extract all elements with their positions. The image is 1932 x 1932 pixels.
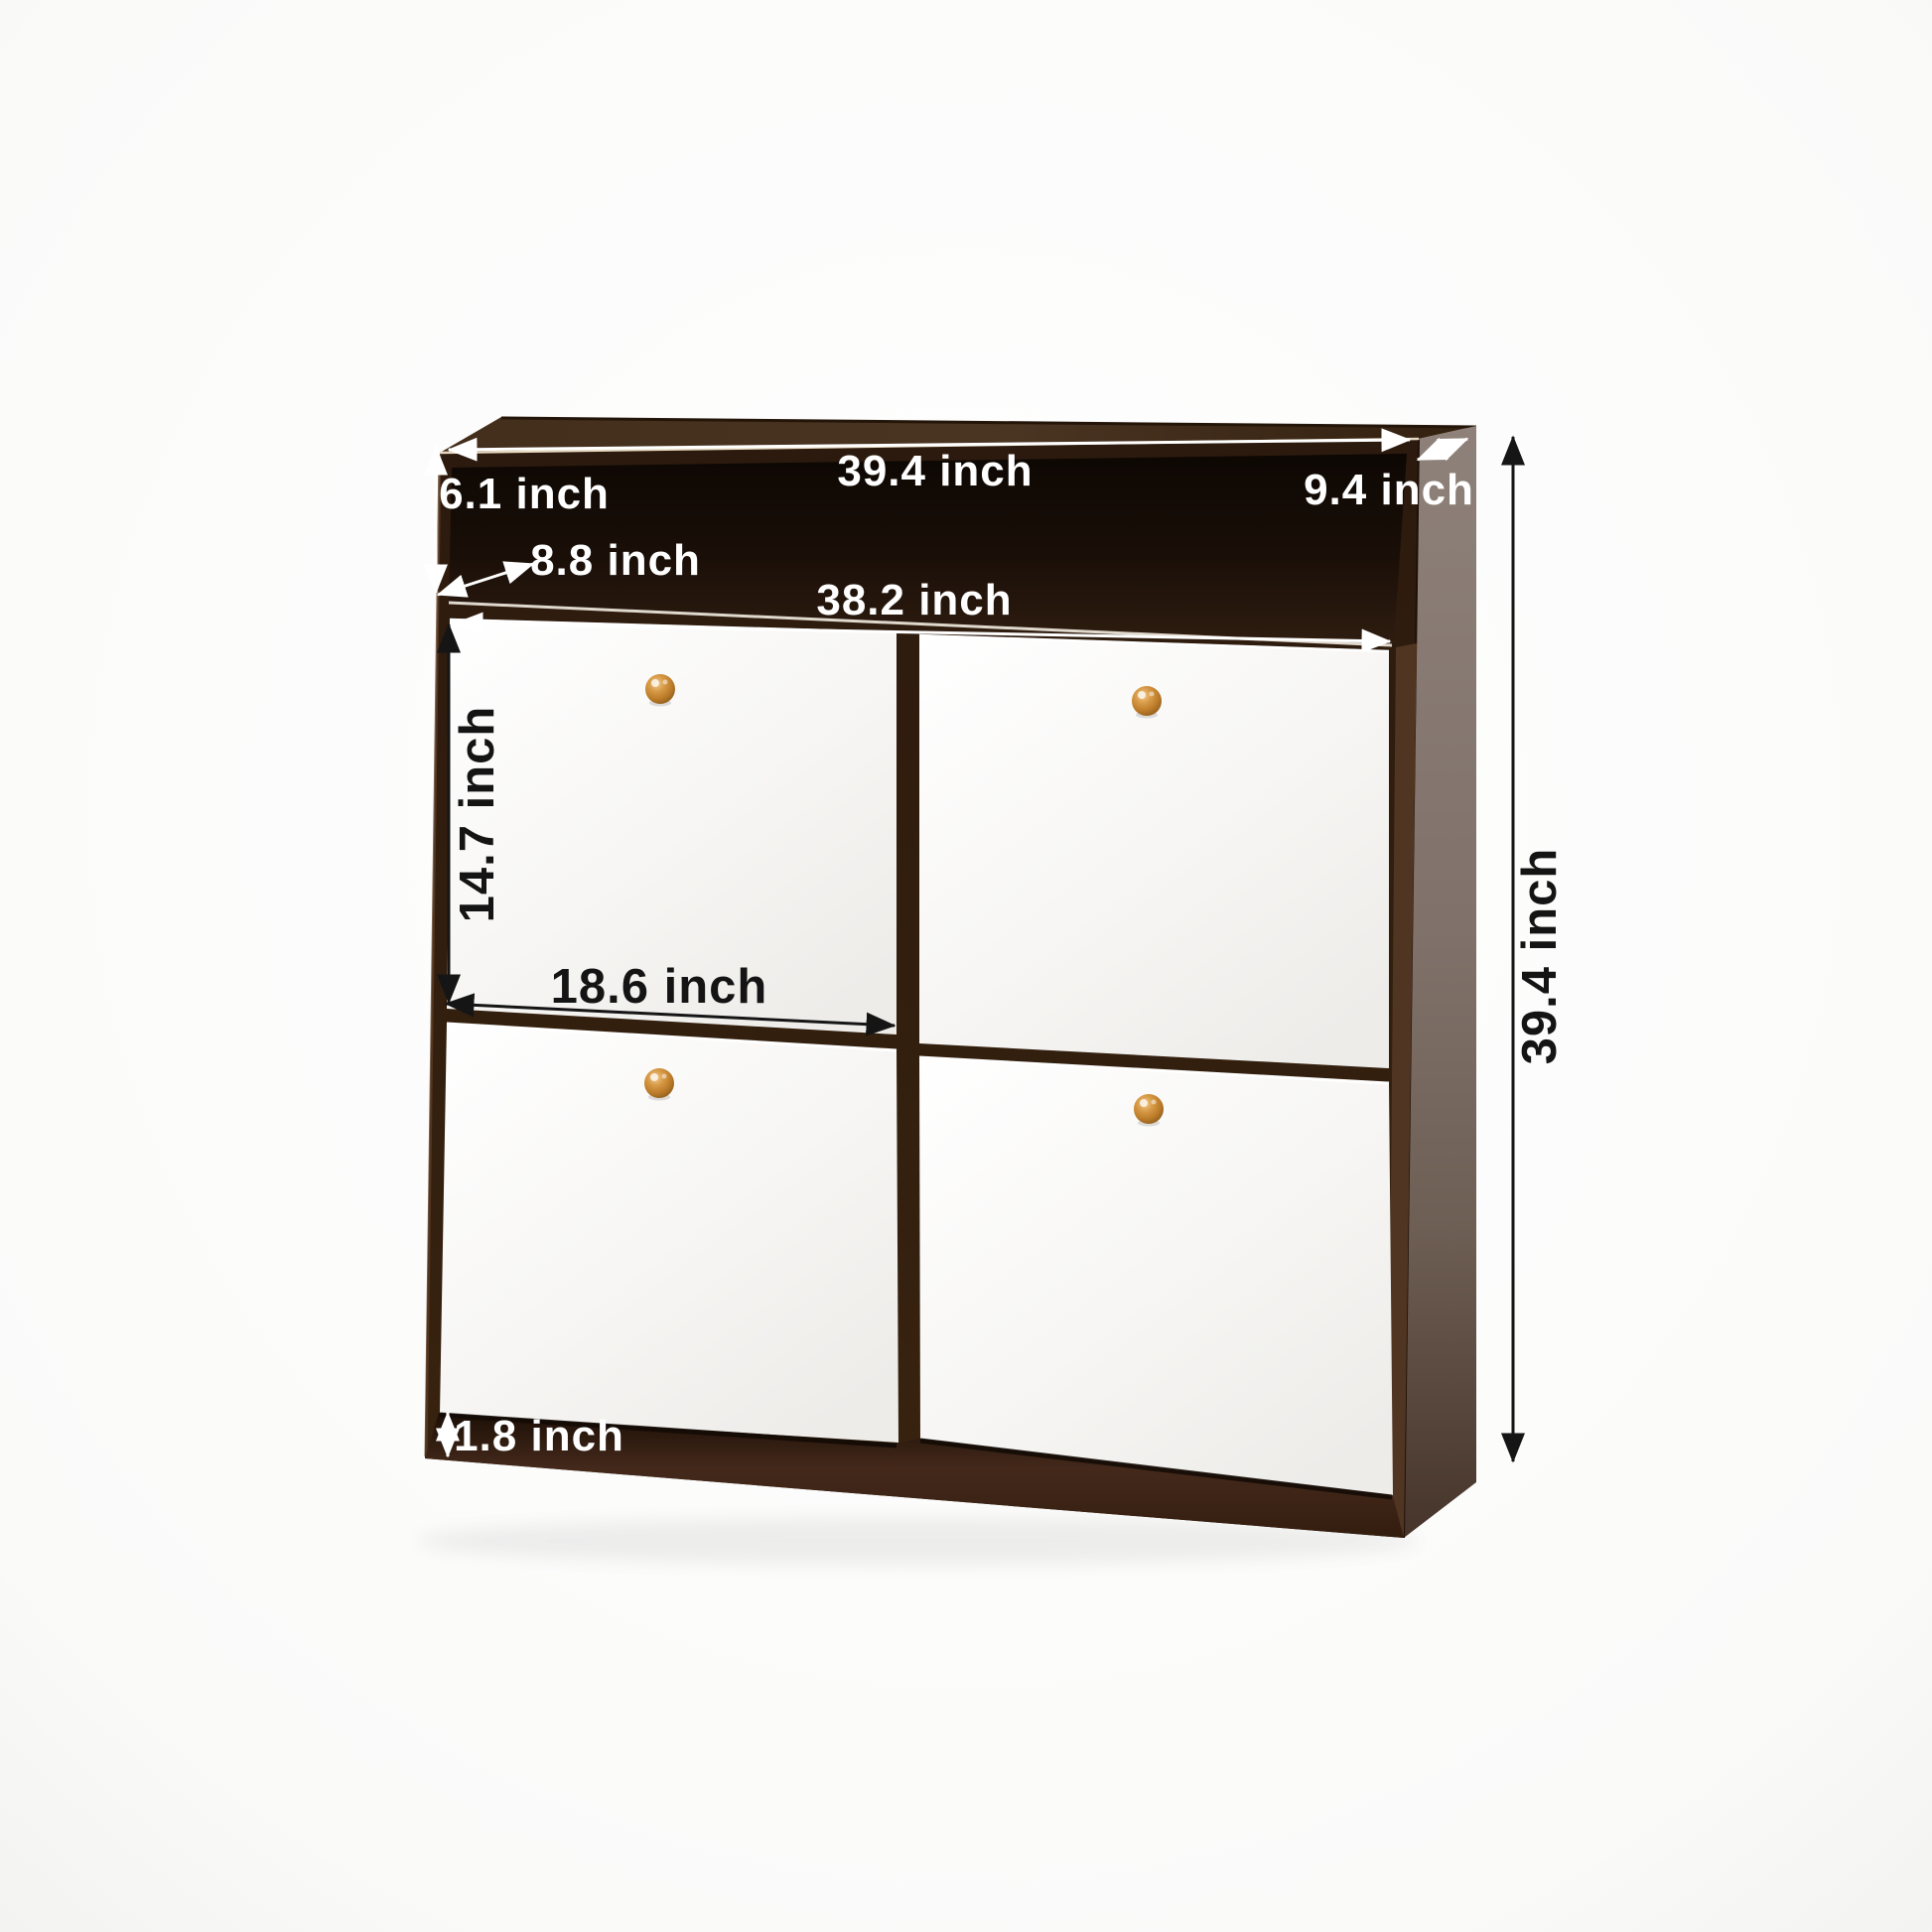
label-door-width: 18.6 inch <box>551 960 768 1014</box>
label-inner-width: 38.2 inch <box>816 576 1012 624</box>
label-top-compartment-height: 6.1 inch <box>439 470 610 518</box>
label-overall-depth: 9.4 inch <box>1304 466 1474 514</box>
label-door-height: 14.7 inch <box>451 706 504 923</box>
label-overall-height: 39.4 inch <box>1513 848 1567 1065</box>
label-base-height: 1.8 inch <box>454 1412 624 1460</box>
product-image: 39.4 inch 6.1 inch 8.8 inch 38.2 inch 9.… <box>0 0 1932 1932</box>
shoe-cabinet-dimension-diagram: 39.4 inch 6.1 inch 8.8 inch 38.2 inch 9.… <box>0 0 1932 1932</box>
label-overall-width: 39.4 inch <box>837 447 1033 495</box>
label-top-compartment-depth: 8.8 inch <box>530 536 701 585</box>
